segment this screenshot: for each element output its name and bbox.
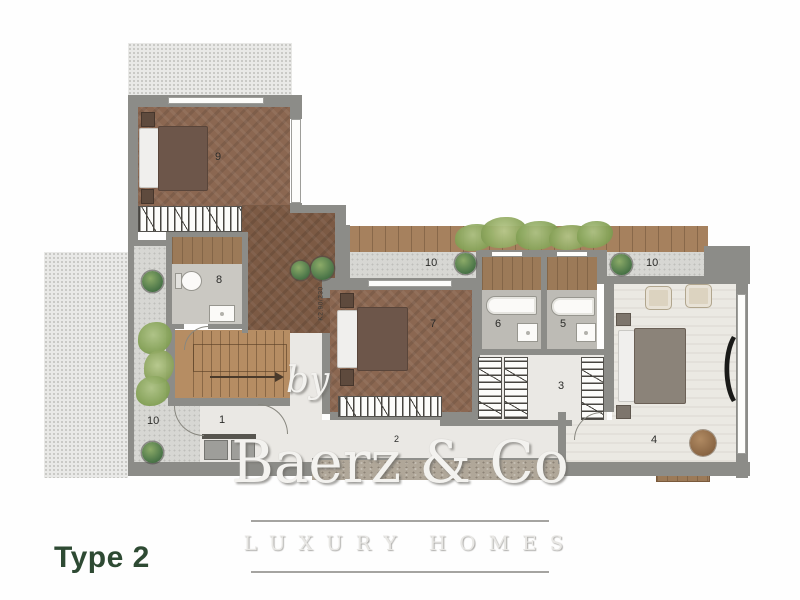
nightstand (616, 313, 631, 326)
nightstand (141, 112, 155, 127)
closet-6-floor (482, 257, 541, 290)
door-gap-closet-5 (557, 252, 587, 256)
bathroom-8-entry-floor (172, 237, 242, 264)
room-label-bedroom-4: 4 (651, 434, 657, 446)
wall-tv (716, 334, 738, 404)
stair-direction-arrow (210, 376, 276, 378)
potted-plant (142, 442, 163, 463)
wardrobe (338, 396, 442, 417)
wall (476, 250, 482, 355)
wall (560, 462, 750, 476)
potted-plant (291, 261, 310, 280)
bed-blanket (158, 126, 208, 191)
watermark-tagline: LUXURY HOMES (244, 531, 577, 555)
window-top (168, 97, 264, 104)
wall (208, 324, 248, 329)
room-label-bedroom-9: 9 (215, 151, 221, 163)
room-label-bathroom-5: 5 (560, 318, 566, 330)
wardrobe (478, 357, 502, 419)
room-label-bathroom-6: 6 (495, 318, 501, 330)
potted-plant (311, 257, 334, 280)
wardrobe (138, 206, 242, 232)
window-bedroom-7 (368, 280, 452, 287)
bed-blanket (357, 307, 408, 371)
bed-pillows (139, 128, 159, 188)
sink (576, 323, 596, 342)
wall (128, 245, 134, 462)
wall (168, 398, 290, 406)
floorplan-canvas: 9 8 7 6 5 3 4 1 2 10 10 10 K2.90/230 by … (0, 0, 800, 600)
closet-5-floor (547, 257, 597, 290)
wardrobe (581, 357, 604, 420)
door-gap-closet-6 (492, 252, 522, 256)
nightstand (141, 189, 154, 204)
nightstand (616, 405, 631, 419)
potted-plant (611, 254, 632, 275)
wall (128, 95, 138, 245)
armchair (685, 284, 712, 308)
room-label-dressing-3: 3 (558, 380, 564, 392)
plan-title: Type 2 (54, 541, 150, 575)
stair-arrowhead (275, 372, 284, 382)
wall (476, 349, 607, 355)
wall (604, 278, 614, 412)
entry-closet-unit (204, 440, 228, 460)
bathtub (486, 296, 537, 315)
potted-plant (142, 271, 163, 292)
room-label-entry-1: 1 (219, 414, 225, 426)
watermark-brand: Baerz & Co (231, 428, 569, 496)
watermark-by: by (286, 360, 329, 401)
bed-pillows (337, 310, 358, 368)
room-label-balcony-mid-10: 10 (425, 257, 437, 269)
wall (607, 276, 707, 284)
wall (342, 225, 350, 280)
bed-pillows (618, 330, 635, 402)
wall (166, 232, 242, 237)
nightstand (340, 293, 354, 308)
sink (209, 305, 235, 322)
armchair (645, 286, 672, 310)
window-bedroom-4 (737, 294, 746, 454)
window-bedroom-9 (291, 119, 301, 203)
wall (166, 232, 172, 328)
potted-plant (455, 253, 476, 274)
terrain-patch-top (128, 43, 292, 95)
wall (242, 232, 248, 333)
terrain-patch-left (44, 252, 128, 478)
toilet-bowl (181, 271, 202, 291)
wall (132, 240, 166, 246)
nightstand (340, 369, 354, 386)
wall (541, 250, 547, 355)
room-label-bedroom-7: 7 (430, 318, 436, 330)
room-label-balcony-right-10: 10 (646, 257, 658, 269)
wall (290, 95, 302, 119)
room-label-bathroom-8: 8 (216, 274, 222, 286)
door-size-tag: K2.90/230 (318, 281, 325, 327)
pouf (690, 430, 716, 456)
bathtub (551, 297, 595, 316)
watermark-divider-bottom (251, 571, 549, 573)
sink (517, 323, 538, 342)
room-label-terrace-10: 10 (147, 415, 159, 427)
wardrobe (504, 357, 528, 419)
watermark-divider-top (251, 520, 549, 522)
bed-blanket (634, 328, 686, 404)
wall (440, 420, 572, 426)
